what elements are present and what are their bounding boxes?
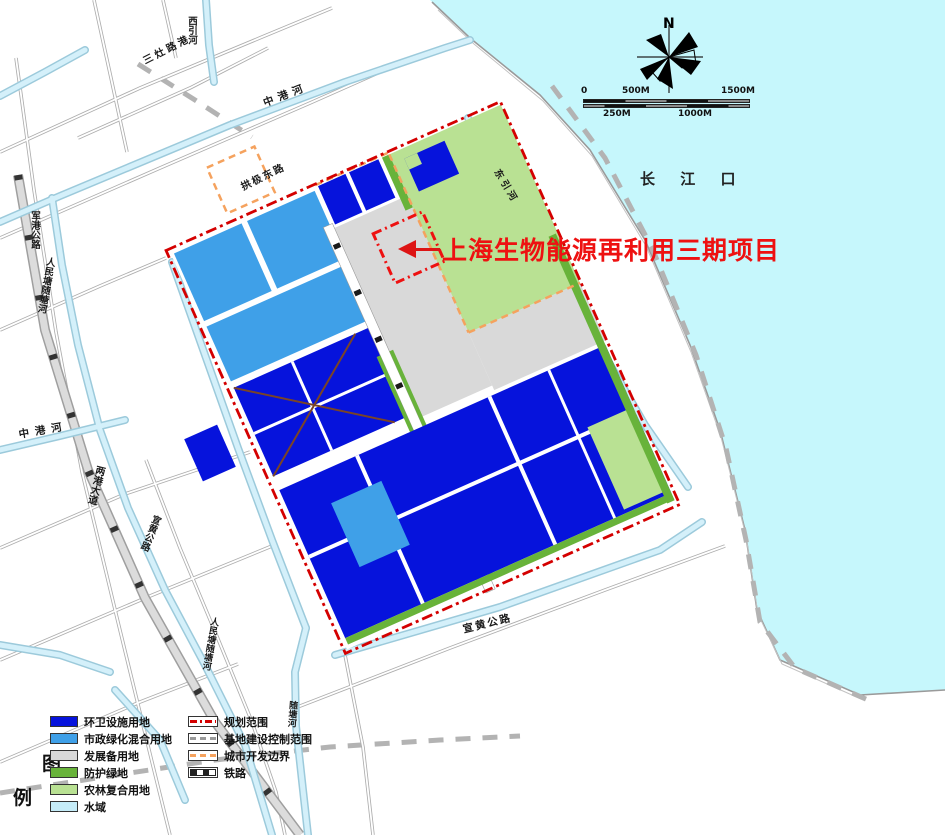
legend-item-reserve: 发展备用地: [50, 749, 139, 762]
legend-label: 水域: [84, 799, 106, 815]
legend-swatch: [188, 716, 218, 727]
legend-item-base-control-range: 基地建设控制范围: [188, 732, 312, 745]
legend-label: 防护绿地: [84, 765, 128, 781]
legend-title-li: 例: [13, 783, 32, 810]
scale-bar-lower: [583, 104, 750, 108]
scale-tick-0: 0: [581, 86, 587, 96]
map-label-jungang-road: 军港公路: [29, 211, 39, 249]
legend-label: 农林复合用地: [84, 782, 150, 798]
planning-map-page: { "annotation": {"text": "上海生物能源再利用三期项目"…: [0, 0, 945, 835]
project-annotation-text: 上海生物能源再利用三期项目: [442, 231, 780, 267]
legend-swatch: [188, 733, 218, 744]
scale-tick-1000: 1000M: [678, 109, 712, 119]
legend-label: 环卫设施用地: [84, 714, 150, 730]
legend-swatch: [188, 750, 218, 761]
legend-label: 市政绿化混合用地: [84, 731, 172, 747]
legend-label: 铁路: [224, 765, 246, 781]
legend-item-planning-boundary: 规划范围: [188, 715, 268, 728]
scale-bar: 0 500M 1500M 250M 1000M: [575, 86, 765, 120]
project-annotation: 上海生物能源再利用三期项目: [398, 231, 780, 267]
legend-swatch: [188, 767, 218, 778]
legend-label: 基地建设控制范围: [224, 731, 312, 747]
legend-item-water: 水域: [50, 800, 106, 813]
scale-tick-250: 250M: [603, 109, 631, 119]
legend-label: 发展备用地: [84, 748, 139, 764]
legend-swatch: [50, 750, 78, 761]
legend-swatch: [50, 784, 78, 795]
legend-item-municipal-green-mix: 市政绿化混合用地: [50, 732, 172, 745]
legend-item-agroforestry: 农林复合用地: [50, 783, 150, 796]
water-label-changjiangkou: 长 江 口: [640, 172, 745, 188]
scale-tick-500: 500M: [622, 86, 650, 96]
legend-label: 城市开发边界: [224, 748, 290, 764]
legend-item-railway: 铁路: [188, 766, 246, 779]
arrow-left-icon: [398, 240, 416, 258]
legend-item-city-dev-boundary: 城市开发边界: [188, 749, 290, 762]
legend-item-sanitation: 环卫设施用地: [50, 715, 150, 728]
legend-swatch: [50, 767, 78, 778]
legend: 图 例 环卫设施用地 市政绿化混合用地 发展备用地 防护绿地 农林复合用地 水域…: [0, 700, 340, 835]
legend-swatch: [50, 716, 78, 727]
legend-label: 规划范围: [224, 714, 268, 730]
legend-item-protection-green: 防护绿地: [50, 766, 128, 779]
arrow-shaft: [416, 248, 440, 251]
legend-swatch: [50, 733, 78, 744]
scale-bar-upper: [583, 99, 750, 103]
scale-tick-1500: 1500M: [721, 86, 755, 96]
compass-north-label: N: [663, 16, 675, 32]
legend-swatch: [50, 801, 78, 812]
